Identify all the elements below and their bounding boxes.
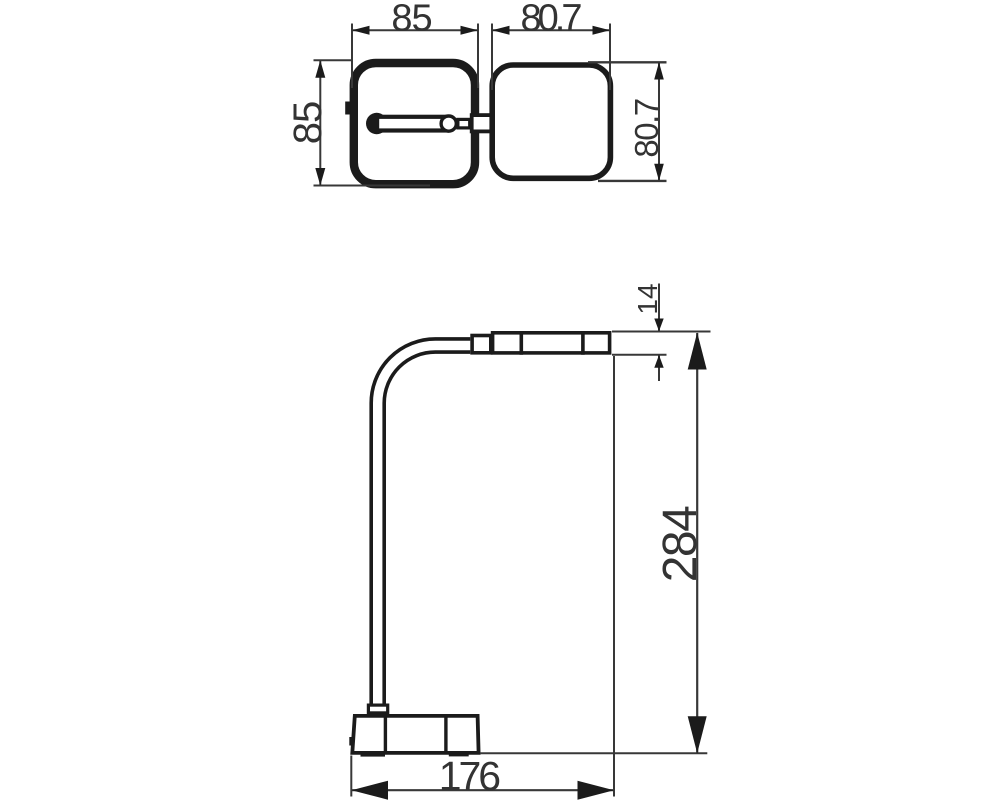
svg-text:85: 85: [391, 0, 431, 40]
svg-text:14: 14: [632, 283, 663, 314]
svg-text:85: 85: [286, 102, 330, 145]
svg-text:80.7: 80.7: [628, 99, 665, 157]
svg-text:284: 284: [654, 506, 707, 582]
svg-text:176: 176: [439, 753, 500, 799]
svg-text:80.7: 80.7: [521, 0, 582, 40]
